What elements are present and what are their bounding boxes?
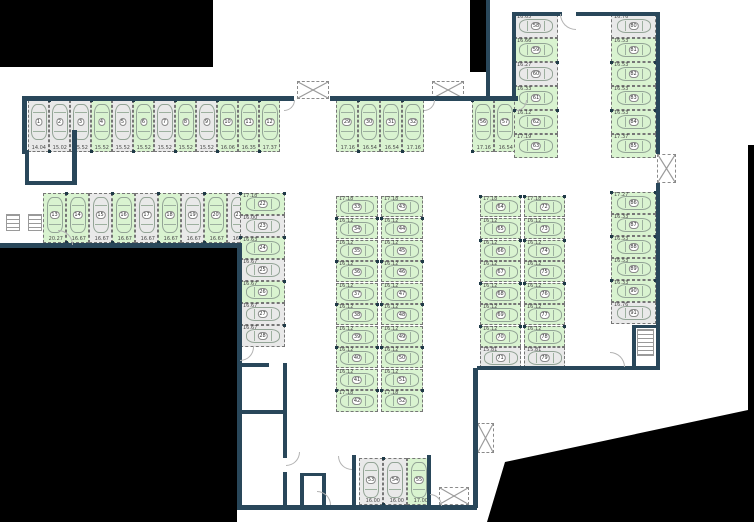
wall (22, 96, 27, 154)
grid-dot (335, 346, 338, 349)
space-dimension: 16.67 (159, 236, 178, 242)
parking-space-53[interactable]: 5316.00 (359, 458, 383, 505)
car-icon: 27 (246, 307, 280, 321)
space-dimension: 16.33 (614, 214, 628, 220)
parking-space-43[interactable]: 4317.18 (381, 196, 423, 217)
parking-space-88[interactable]: 8816.53 (611, 236, 656, 258)
parking-space-63[interactable]: 6317.19 (514, 134, 558, 158)
space-number: 90 (628, 287, 638, 295)
space-number: 51 (397, 376, 407, 384)
space-dimension: 16.12 (517, 110, 531, 116)
space-number: 13 (49, 211, 59, 219)
space-dimension: 17.18 (339, 390, 353, 396)
parking-space-5[interactable]: 515.52 (112, 100, 133, 152)
parking-space-64[interactable]: 6417.18 (480, 196, 521, 217)
parking-space-65[interactable]: 6516.12 (480, 218, 521, 239)
parking-space-15[interactable]: 1516.67 (89, 193, 112, 243)
parking-space-35[interactable]: 3516.12 (336, 240, 378, 261)
grid-dot (376, 217, 379, 220)
wall (576, 12, 660, 16)
space-dimension: 16.12 (527, 304, 541, 310)
space-number: 72 (539, 203, 549, 211)
space-dimension: 16.54 (495, 145, 513, 151)
wall (486, 0, 490, 98)
grid-dot (380, 389, 383, 392)
space-number: 77 (539, 311, 549, 319)
parking-space-69[interactable]: 6916.12 (480, 304, 521, 325)
parking-space-22[interactable]: 2217.18 (240, 193, 285, 215)
car-icon: 26 (246, 285, 280, 299)
space-dimension: 16.12 (339, 326, 353, 332)
grid-dot (519, 282, 522, 285)
parking-space-8[interactable]: 815.52 (175, 100, 196, 152)
stairs-icon (637, 329, 654, 356)
space-number: 55 (414, 476, 424, 484)
parking-space-32[interactable]: 3217.16 (402, 100, 424, 152)
parking-space-48[interactable]: 4816.12 (381, 304, 423, 325)
car-icon: 9 (199, 104, 215, 140)
space-dimension: 17.18 (339, 196, 353, 202)
parking-space-4[interactable]: 415.52 (91, 100, 112, 152)
space-dimension: 16.12 (384, 369, 398, 375)
grid-dot (376, 303, 379, 306)
car-icon: 5 (115, 104, 131, 140)
space-number: 53 (366, 476, 376, 484)
grid-dot (111, 192, 114, 195)
space-number: 25 (257, 266, 267, 274)
space-dimension: 17.37 (614, 134, 628, 140)
parking-space-83[interactable]: 8316.53 (611, 86, 656, 110)
space-number: 27 (257, 310, 267, 318)
grid-dot (479, 325, 482, 328)
space-number: 35 (352, 247, 362, 255)
space-dimension: 15.52 (197, 145, 214, 151)
parking-space-59[interactable]: 5916.66 (514, 38, 558, 62)
space-number: 67 (495, 268, 505, 276)
parking-space-82[interactable]: 8216.53 (611, 62, 656, 86)
space-dimension: 16.12 (339, 240, 353, 246)
parking-space-79[interactable]: 7915.81 (524, 347, 565, 368)
grid-dot (519, 325, 522, 328)
car-icon: 58 (519, 19, 553, 33)
grid-dot (335, 389, 338, 392)
space-number: 1 (35, 118, 42, 126)
parking-space-51[interactable]: 5116.12 (381, 369, 423, 390)
wall (512, 12, 562, 16)
car-icon: 86 (617, 196, 651, 210)
space-dimension: 17.16 (337, 145, 355, 151)
grid-dot (335, 260, 338, 263)
parking-space-62[interactable]: 6216.12 (514, 110, 558, 134)
space-dimension: 16.63 (243, 237, 257, 243)
parking-space-23[interactable]: 2316.00 (240, 215, 285, 237)
space-number: 73 (539, 225, 549, 233)
grid-dot (556, 61, 559, 64)
car-icon: 7 (157, 104, 173, 140)
space-number: 83 (628, 94, 638, 102)
space-dimension: 16.12 (483, 218, 497, 224)
parking-space-36[interactable]: 3616.12 (336, 261, 378, 282)
parking-space-34[interactable]: 3416.12 (336, 218, 378, 239)
car-icon: 87 (617, 218, 651, 232)
parking-space-90[interactable]: 9016.33 (611, 280, 656, 302)
space-number: 52 (397, 397, 407, 405)
wall (25, 181, 77, 185)
parking-space-71[interactable]: 7115.81 (480, 347, 521, 368)
parking-space-77[interactable]: 7716.12 (524, 304, 565, 325)
parking-space-66[interactable]: 6616.12 (480, 240, 521, 261)
parking-space-24[interactable]: 2416.63 (240, 237, 285, 259)
parking-space-89[interactable]: 8916.53 (611, 258, 656, 280)
car-icon: 81 (617, 43, 651, 57)
space-dimension: 16.12 (384, 240, 398, 246)
grid-dot (382, 457, 385, 460)
space-dimension: 17.37 (260, 145, 277, 151)
space-dimension: 16.12 (339, 304, 353, 310)
car-icon: 16 (116, 197, 132, 233)
car-icon: 62 (519, 115, 553, 129)
space-dimension: 16.12 (384, 283, 398, 289)
grid-dot (563, 195, 566, 198)
parking-space-47[interactable]: 4716.12 (381, 283, 423, 304)
space-number: 19 (187, 211, 197, 219)
car-icon: 6 (136, 104, 152, 140)
space-number: 75 (539, 268, 549, 276)
parking-space-70[interactable]: 7016.12 (480, 326, 521, 347)
parking-space-87[interactable]: 8716.33 (611, 214, 656, 236)
parking-space-68[interactable]: 6816.12 (480, 283, 521, 304)
door-arc (240, 347, 254, 361)
space-dimension: 16.53 (614, 236, 628, 242)
wall (300, 473, 304, 507)
space-dimension: 16.53 (614, 86, 628, 92)
space-number: 10 (222, 118, 232, 126)
space-number: 12 (264, 118, 274, 126)
car-icon: 82 (617, 67, 651, 81)
grid-dot (239, 192, 242, 195)
parking-space-81[interactable]: 8116.53 (611, 38, 656, 62)
parking-space-39[interactable]: 3916.12 (336, 326, 378, 347)
parking-space-10[interactable]: 1016.06 (217, 100, 238, 152)
parking-space-57[interactable]: 5716.54 (494, 100, 516, 152)
parking-space-75[interactable]: 7516.12 (524, 261, 565, 282)
space-dimension: 16.12 (483, 283, 497, 289)
space-number: 23 (257, 222, 267, 230)
parking-space-25[interactable]: 2516.67 (240, 259, 285, 281)
grid-dot (335, 303, 338, 306)
grid-dot (519, 195, 522, 198)
parking-space-91[interactable]: 9116.76 (611, 302, 656, 324)
parking-space-27[interactable]: 2716.67 (240, 303, 285, 325)
door-arc (424, 100, 435, 111)
space-number: 61 (531, 94, 541, 102)
door-arc (560, 14, 576, 30)
space-number: 74 (539, 247, 549, 255)
door-arc (317, 491, 331, 505)
space-dimension: 17.16 (473, 145, 491, 151)
grid-dot (421, 346, 424, 349)
space-dimension: 17.18 (527, 196, 541, 202)
space-number: 41 (352, 376, 362, 384)
space-dimension: 15.52 (134, 145, 151, 151)
car-icon: 30 (361, 104, 377, 140)
parking-space-26[interactable]: 2616.67 (240, 281, 285, 303)
space-dimension: 16.12 (483, 304, 497, 310)
grid-dot (479, 195, 482, 198)
space-number: 2 (56, 118, 63, 126)
space-dimension: 16.54 (359, 145, 377, 151)
space-number: 20 (210, 211, 220, 219)
space-dimension: 16.00 (384, 498, 404, 504)
space-dimension: 16.12 (384, 326, 398, 332)
parking-space-72[interactable]: 7217.18 (524, 196, 565, 217)
space-number: 84 (628, 118, 638, 126)
space-dimension: 16.54 (381, 145, 399, 151)
parking-space-11[interactable]: 1116.35 (238, 100, 259, 152)
parking-space-84[interactable]: 8416.53 (611, 110, 656, 134)
grid-dot (380, 303, 383, 306)
parking-space-67[interactable]: 6716.12 (480, 261, 521, 282)
parking-space-80[interactable]: 8016.76 (611, 14, 656, 38)
space-number: 42 (352, 397, 362, 405)
elevator-shaft-icon (657, 154, 676, 183)
parking-space-6[interactable]: 615.52 (133, 100, 154, 152)
space-number: 66 (495, 247, 505, 255)
space-number: 68 (495, 290, 505, 298)
parking-space-20[interactable]: 2016.67 (204, 193, 227, 243)
parking-space-33[interactable]: 3317.18 (336, 196, 378, 217)
grid-dot (216, 150, 219, 153)
grid-dot (376, 389, 379, 392)
wall (237, 243, 242, 510)
space-number: 22 (257, 200, 267, 208)
space-number: 91 (628, 309, 638, 317)
car-icon: 89 (617, 262, 651, 276)
parking-space-45[interactable]: 4516.12 (381, 240, 423, 261)
space-number: 28 (257, 332, 267, 340)
parking-space-46[interactable]: 4616.12 (381, 261, 423, 282)
parking-space-86[interactable]: 8617.27 (611, 192, 656, 214)
parking-space-30[interactable]: 3016.54 (358, 100, 380, 152)
car-icon: 54 (387, 462, 403, 498)
space-number: 26 (257, 288, 267, 296)
parking-space-49[interactable]: 4916.12 (381, 326, 423, 347)
space-number: 44 (397, 225, 407, 233)
car-icon: 42 (340, 394, 374, 408)
space-dimension: 16.67 (243, 325, 257, 331)
space-dimension: 16.67 (136, 236, 155, 242)
parking-space-85[interactable]: 8517.37 (611, 134, 656, 158)
wall (72, 130, 77, 185)
parking-space-31[interactable]: 3116.54 (380, 100, 402, 152)
car-icon: 1 (31, 104, 47, 140)
space-dimension: 16.12 (384, 304, 398, 310)
space-number: 86 (628, 199, 638, 207)
space-number: 47 (397, 290, 407, 298)
grid-dot (335, 217, 338, 220)
space-dimension: 15.02 (50, 145, 67, 151)
grid-dot (471, 150, 474, 153)
grid-dot (421, 389, 424, 392)
space-dimension: 16.67 (113, 236, 132, 242)
space-number: 60 (531, 70, 541, 78)
space-number: 80 (628, 22, 638, 30)
space-dimension: 16.12 (339, 218, 353, 224)
door-arc (286, 452, 300, 466)
space-number: 3 (77, 118, 84, 126)
space-dimension: 17.00 (408, 498, 428, 504)
parking-space-42[interactable]: 4217.18 (336, 390, 378, 412)
floor-plan: 114.04215.02315.52415.52515.52615.52715.… (0, 0, 754, 522)
grid-dot (132, 150, 135, 153)
space-dimension: 16.12 (527, 283, 541, 289)
parking-space-9[interactable]: 915.52 (196, 100, 217, 152)
parking-space-74[interactable]: 7416.12 (524, 240, 565, 261)
space-number: 14 (72, 211, 82, 219)
parking-space-44[interactable]: 4416.12 (381, 218, 423, 239)
parking-space-41[interactable]: 4116.12 (336, 369, 378, 390)
wall (352, 455, 356, 507)
grid-dot (479, 282, 482, 285)
space-dimension: 16.12 (483, 261, 497, 267)
car-icon: 10 (220, 104, 236, 140)
grid-dot (380, 346, 383, 349)
parking-space-56[interactable]: 5617.16 (472, 100, 494, 152)
parking-space-17[interactable]: 1716.67 (135, 193, 158, 243)
parking-space-37[interactable]: 3716.12 (336, 283, 378, 304)
parking-space-28[interactable]: 2816.67 (240, 325, 285, 347)
car-icon: 52 (385, 394, 419, 408)
space-number: 88 (628, 243, 638, 251)
space-number: 87 (628, 221, 638, 229)
space-number: 34 (352, 225, 362, 233)
grid-dot (283, 324, 286, 327)
parking-space-58[interactable]: 5816.65 (514, 14, 558, 38)
car-icon: 28 (246, 329, 280, 343)
parking-space-50[interactable]: 5016.12 (381, 347, 423, 368)
grid-dot (203, 192, 206, 195)
parking-space-54[interactable]: 5416.00 (383, 458, 407, 505)
parking-space-16[interactable]: 1616.67 (112, 193, 135, 243)
space-dimension: 16.67 (182, 236, 201, 242)
space-number: 45 (397, 247, 407, 255)
wall (0, 243, 242, 248)
grid-dot (258, 150, 261, 153)
space-number: 85 (628, 142, 638, 150)
grid-dot (48, 150, 51, 153)
space-number: 43 (397, 203, 407, 211)
space-dimension: 15.52 (155, 145, 172, 151)
space-dimension: 16.12 (527, 218, 541, 224)
space-number: 18 (164, 211, 174, 219)
parking-space-7[interactable]: 715.52 (154, 100, 175, 152)
space-dimension: 16.67 (243, 259, 257, 265)
space-number: 11 (243, 118, 253, 126)
space-dimension: 14.04 (29, 145, 46, 151)
space-number: 59 (531, 46, 541, 54)
grid-dot (357, 150, 360, 153)
car-icon: 55 (411, 462, 427, 498)
parking-space-78[interactable]: 7816.12 (524, 326, 565, 347)
space-dimension: 16.06 (218, 145, 235, 151)
space-dimension: 15.81 (527, 347, 541, 353)
car-icon: 13 (47, 197, 63, 233)
space-number: 89 (628, 265, 638, 273)
space-dimension: 16.67 (243, 281, 257, 287)
parking-space-1[interactable]: 114.04 (28, 100, 49, 152)
car-icon: 4 (94, 104, 110, 140)
parking-space-29[interactable]: 2917.16 (336, 100, 358, 152)
space-dimension: 16.12 (384, 347, 398, 353)
parking-space-76[interactable]: 7616.12 (524, 283, 565, 304)
space-number: 39 (352, 333, 362, 341)
grid-dot (563, 282, 566, 285)
door-arc (284, 100, 295, 111)
space-dimension: 16.12 (483, 326, 497, 332)
space-dimension: 16.12 (339, 283, 353, 289)
space-number: 50 (397, 354, 407, 362)
space-number: 65 (495, 225, 505, 233)
grid-dot (65, 192, 68, 195)
space-number: 5 (119, 118, 126, 126)
car-icon: 31 (383, 104, 399, 140)
parking-space-19[interactable]: 1916.67 (181, 193, 204, 243)
space-dimension: 16.53 (614, 110, 628, 116)
wall (237, 410, 287, 414)
parking-space-52[interactable]: 5217.18 (381, 390, 423, 412)
car-icon: 20 (208, 197, 224, 233)
space-dimension: 17.18 (483, 196, 497, 202)
space-number: 16 (118, 211, 128, 219)
wall (632, 325, 636, 369)
space-dimension: 16.12 (527, 240, 541, 246)
space-number: 32 (408, 118, 418, 126)
parking-space-12[interactable]: 1217.37 (259, 100, 280, 152)
space-dimension: 16.27 (517, 62, 531, 68)
parking-space-38[interactable]: 3816.12 (336, 304, 378, 325)
space-number: 7 (161, 118, 168, 126)
space-dimension: 16.12 (527, 326, 541, 332)
parking-space-40[interactable]: 4016.12 (336, 347, 378, 368)
space-number: 24 (257, 244, 267, 252)
space-number: 71 (495, 354, 505, 362)
grid-dot (90, 150, 93, 153)
space-dimension: 16.12 (384, 261, 398, 267)
car-icon: 23 (246, 219, 280, 233)
stairs-icon (6, 214, 20, 231)
space-number: 46 (397, 268, 407, 276)
grid-dot (523, 325, 526, 328)
grid-dot (376, 260, 379, 263)
grid-dot (563, 239, 566, 242)
car-icon: 2 (52, 104, 68, 140)
parking-space-60[interactable]: 6016.27 (514, 62, 558, 86)
grid-dot (563, 325, 566, 328)
parking-space-18[interactable]: 1816.67 (158, 193, 181, 243)
grid-dot (610, 61, 613, 64)
grid-dot (523, 282, 526, 285)
wall (656, 12, 660, 154)
car-icon: 24 (246, 241, 280, 255)
space-dimension: 16.67 (90, 236, 109, 242)
car-icon: 91 (617, 306, 651, 320)
car-icon: 15 (93, 197, 109, 233)
wall (283, 472, 287, 508)
parking-space-73[interactable]: 7316.12 (524, 218, 565, 239)
car-icon: 83 (617, 91, 651, 105)
parking-space-2[interactable]: 215.02 (49, 100, 70, 152)
space-dimension: 16.12 (527, 261, 541, 267)
